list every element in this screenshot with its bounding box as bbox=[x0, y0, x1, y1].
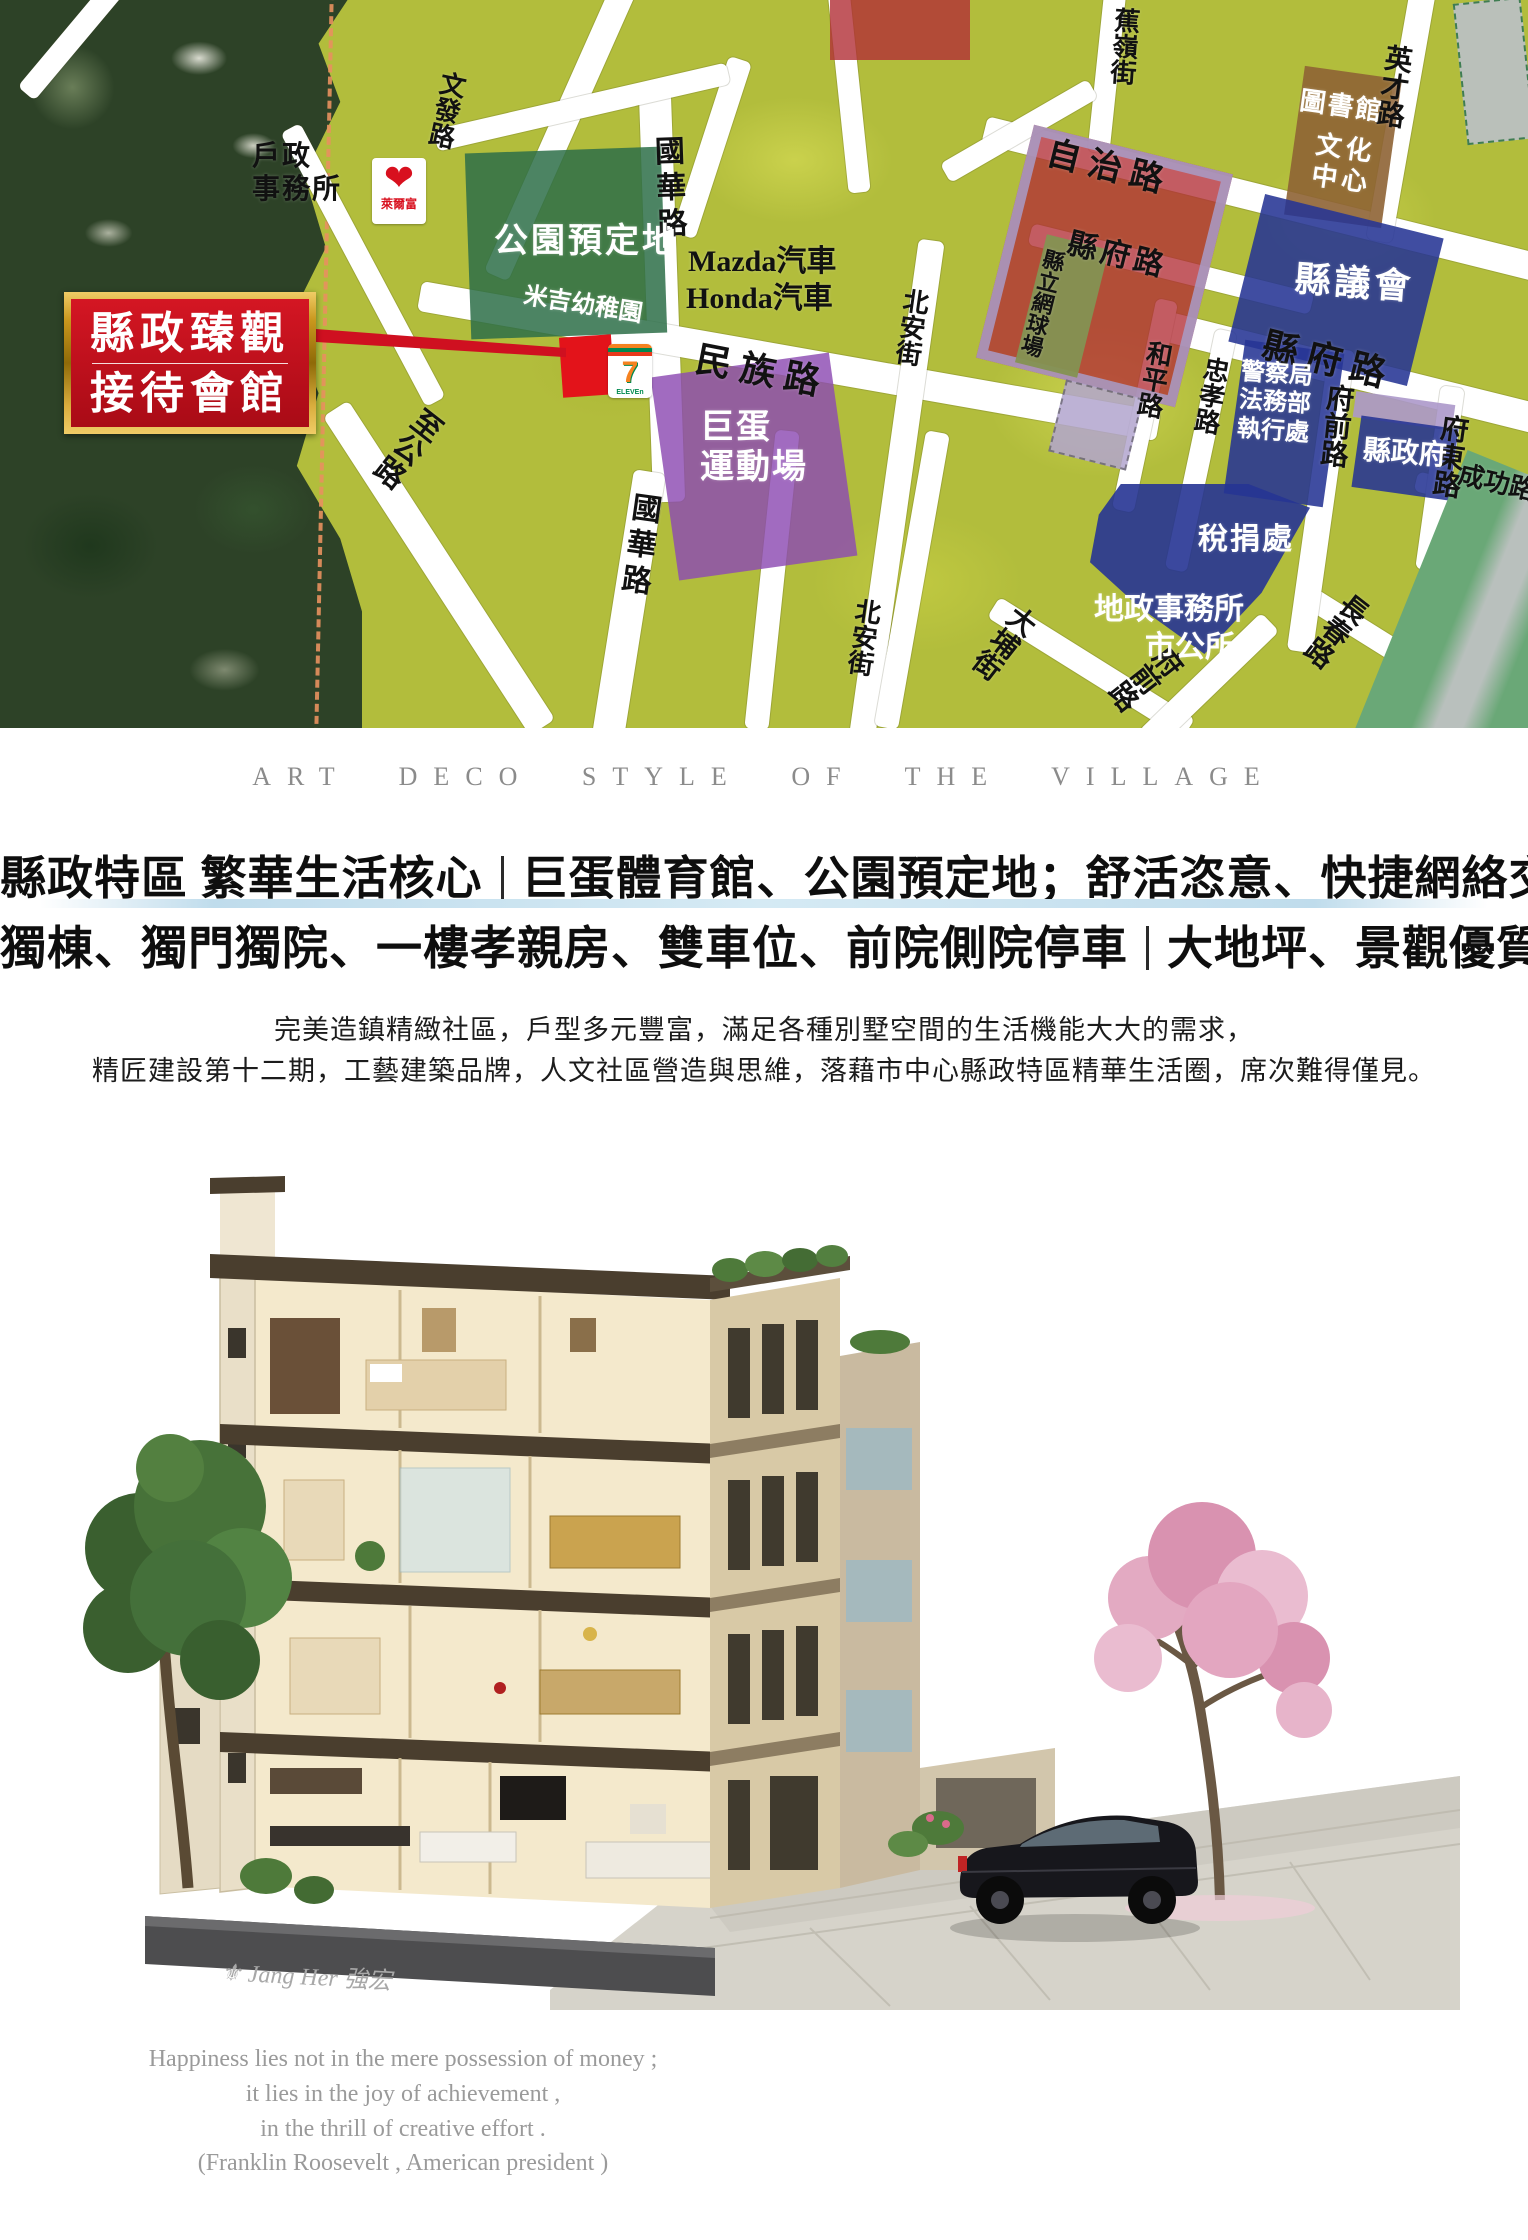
headline-line1-right: 巨蛋體育館、公園預定地；舒活恣意、快捷網絡交通系統 bbox=[522, 853, 1528, 904]
quote-line3: in the thrill of creative effort . bbox=[108, 2112, 698, 2147]
building-illustration: ⚜ Jang Her 強宏 bbox=[70, 1128, 1460, 2018]
badge-title-line2: 接待會館 bbox=[90, 366, 290, 421]
mazda-label: Mazda汽車 bbox=[688, 244, 836, 279]
badge-title-line1: 縣政臻觀 bbox=[90, 306, 290, 361]
hilife-heart-icon: ❤Hi-Life bbox=[372, 158, 426, 198]
culture-center-label: 文化 中心 bbox=[1309, 130, 1377, 199]
headline-line1-left: 縣政特區 繁華生活核心 bbox=[0, 853, 483, 904]
tax-zone bbox=[1090, 484, 1310, 654]
seven-eleven-stripes-icon bbox=[608, 344, 652, 356]
project-badge: 縣政臻觀 接待會館 bbox=[64, 292, 316, 434]
footer-quote: Happiness lies not in the mere possessio… bbox=[108, 2042, 698, 2181]
tax-label: 稅捐處 bbox=[1198, 522, 1294, 557]
dome-label: 巨蛋 運動場 bbox=[700, 408, 808, 488]
land-office-label: 地政事務所 bbox=[1094, 592, 1244, 627]
body-paragraph-line1: 完美造鎮精緻社區，戶型多元豐富，滿足各種別墅空間的生活機能大大的需求， bbox=[0, 1008, 1528, 1047]
quote-line1: Happiness lies not in the mere possessio… bbox=[108, 2042, 698, 2077]
headline-divider-bar bbox=[501, 856, 504, 900]
park-label: 公園預定地 bbox=[494, 222, 679, 262]
guohua-road-s-label: 國華路 bbox=[613, 490, 663, 602]
gov-label: 縣政府 bbox=[1362, 434, 1448, 473]
right-facade bbox=[710, 1278, 840, 1908]
badge-divider bbox=[92, 363, 287, 364]
council-label: 縣議會 bbox=[1293, 258, 1416, 309]
english-tagline: ART DECO STYLE OF THE VILLAGE bbox=[0, 762, 1528, 792]
quote-line2: it lies in the joy of achievement , bbox=[108, 2077, 698, 2112]
jiaoling-road-label: 蕉嶺街 bbox=[1105, 6, 1141, 86]
honda-label: Honda汽車 bbox=[686, 281, 833, 316]
cutaway-building bbox=[160, 1176, 1055, 1908]
hilife-store-logo: ❤Hi-Life 萊爾富 bbox=[372, 158, 426, 224]
cyan-gradient-rule bbox=[40, 899, 1488, 908]
headline-line2: 獨棟、獨門獨院、一樓孝親房、雙車位、前院側院停車大地坪、景觀優質別墅社區 bbox=[0, 912, 1528, 978]
quote-line4: (Franklin Roosevelt , American president… bbox=[108, 2146, 698, 2181]
project-badge-inner: 縣政臻觀 接待會館 bbox=[71, 299, 309, 427]
site-block bbox=[559, 334, 615, 397]
gray-zone bbox=[1453, 0, 1528, 145]
headline-line2-left: 獨棟、獨門獨院、一樓孝親房、雙車位、前院側院停車 bbox=[0, 923, 1128, 974]
city-hall-label: 市公所 bbox=[1145, 630, 1235, 665]
huzheng-label: 戶政 事務所 bbox=[252, 140, 342, 206]
body-paragraph-line2: 精匠建設第十二期，工藝建築品牌，人文社區營造與思維，落藉市中心縣政特區精華生活圈… bbox=[0, 1049, 1528, 1088]
headline-divider-bar bbox=[1146, 926, 1149, 970]
headline-line2-right: 大地坪、景觀優質別墅社區 bbox=[1167, 923, 1528, 974]
zhongxiao-road-label: 忠孝路 bbox=[1187, 354, 1231, 436]
location-map: ❤Hi-Life 萊爾富 7 ELEVEn 戶政 事務所文發路至公路國華路國華路… bbox=[0, 0, 1528, 728]
seven-eleven-logo: 7 ELEVEn bbox=[608, 344, 652, 398]
police-label: 警察局 法務部 執行處 bbox=[1236, 358, 1314, 448]
top-red-zone bbox=[830, 0, 970, 60]
right-annex bbox=[840, 1330, 1055, 1888]
